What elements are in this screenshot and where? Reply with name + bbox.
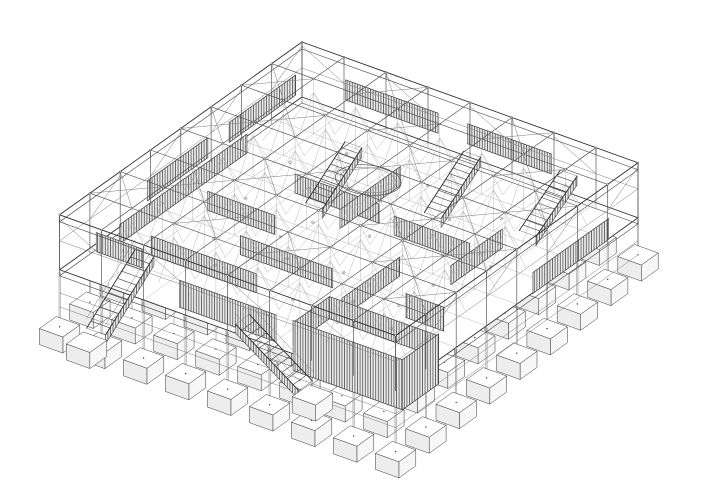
drawing-canvas (0, 0, 720, 480)
structural-axonometric-drawing (0, 0, 720, 480)
